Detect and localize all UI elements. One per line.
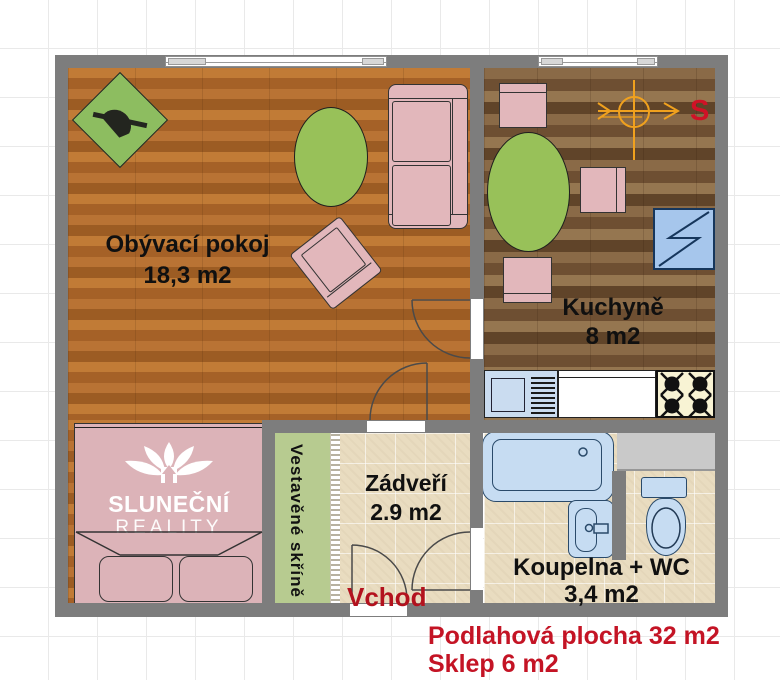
wall-kitchen-bathroom	[470, 420, 728, 433]
chair-backrest-line	[616, 168, 617, 212]
sink-drainer	[531, 377, 555, 414]
kitchen-sink-unit	[484, 370, 558, 418]
door-opening-living-kitchen	[471, 299, 483, 359]
fridge	[653, 208, 715, 270]
kitchen-table	[487, 132, 570, 252]
sofa-armrest-top	[389, 85, 467, 99]
wall-bathroom-stub	[612, 471, 626, 560]
pillow	[99, 556, 173, 602]
counter-edge-line	[559, 377, 655, 378]
kitchen-chair	[499, 83, 547, 128]
wall-outer-left	[55, 55, 68, 617]
kitchen-chair	[580, 167, 626, 213]
kitchen-name: Kuchyně	[528, 293, 698, 322]
sofa-cushion	[392, 101, 451, 162]
entrance-label: Vchod	[347, 582, 426, 613]
wardrobe-label: Vestavěné skříně	[286, 444, 306, 598]
door-opening-living-hall	[367, 421, 425, 432]
kitchen-label: Kuchyně 8 m2	[528, 293, 698, 351]
living-room-name: Obývací pokoj	[80, 229, 295, 260]
sink-basin	[491, 378, 525, 412]
window-sash	[168, 58, 206, 65]
wall-bed-wardrobe	[262, 420, 275, 617]
bathtub-inner	[492, 439, 602, 491]
sofa-backrest	[452, 98, 467, 215]
window-sash	[541, 58, 563, 65]
bathroom-area: 3,4 m2	[494, 581, 709, 608]
chair-backrest-line	[500, 92, 546, 93]
kitchen-counter	[558, 370, 656, 418]
kitchen-area: 8 m2	[528, 322, 698, 351]
toilet-bowl	[646, 498, 686, 556]
footer-total-area: Podlahová plocha 32 m2	[428, 622, 720, 651]
utility-shaft-box	[617, 432, 715, 471]
washbasin	[568, 500, 614, 558]
kitchen-window	[538, 56, 658, 67]
door-opening-hall-bathroom	[471, 528, 483, 590]
living-room-window	[165, 56, 387, 67]
coffee-table	[294, 107, 368, 207]
bathroom-name: Koupelna + WC	[494, 554, 709, 581]
sofa	[388, 84, 468, 229]
bathtub	[482, 431, 614, 502]
bed-headboard-line	[75, 427, 263, 428]
wall-living-kitchen	[470, 55, 484, 433]
window-sash	[637, 58, 655, 65]
washbasin-bowl	[575, 508, 597, 552]
living-room-area: 18,3 m2	[80, 260, 295, 291]
footer-cellar-area: Sklep 6 m2	[428, 650, 559, 679]
hall-area: 2.9 m2	[346, 498, 466, 527]
hall-label: Zádveří 2.9 m2	[346, 469, 466, 527]
floorplan-canvas: SLUNEČNÍ REALITY Vestavěné skříně	[0, 0, 780, 680]
compass-north-label: S	[690, 95, 709, 128]
bathroom-label: Koupelna + WC 3,4 m2	[494, 554, 709, 608]
stove	[656, 370, 715, 418]
fridge-zigzag-icon	[655, 210, 713, 268]
toilet-tank	[641, 477, 687, 498]
wall-outer-right	[715, 55, 728, 617]
sofa-cushion	[392, 165, 451, 226]
bed	[74, 423, 264, 605]
living-room-label: Obývací pokoj 18,3 m2	[80, 229, 295, 291]
pillow	[179, 556, 253, 602]
hall-name: Zádveří	[346, 469, 466, 498]
window-sash	[362, 58, 384, 65]
wardrobe-sliding-door-symbol	[330, 431, 340, 603]
